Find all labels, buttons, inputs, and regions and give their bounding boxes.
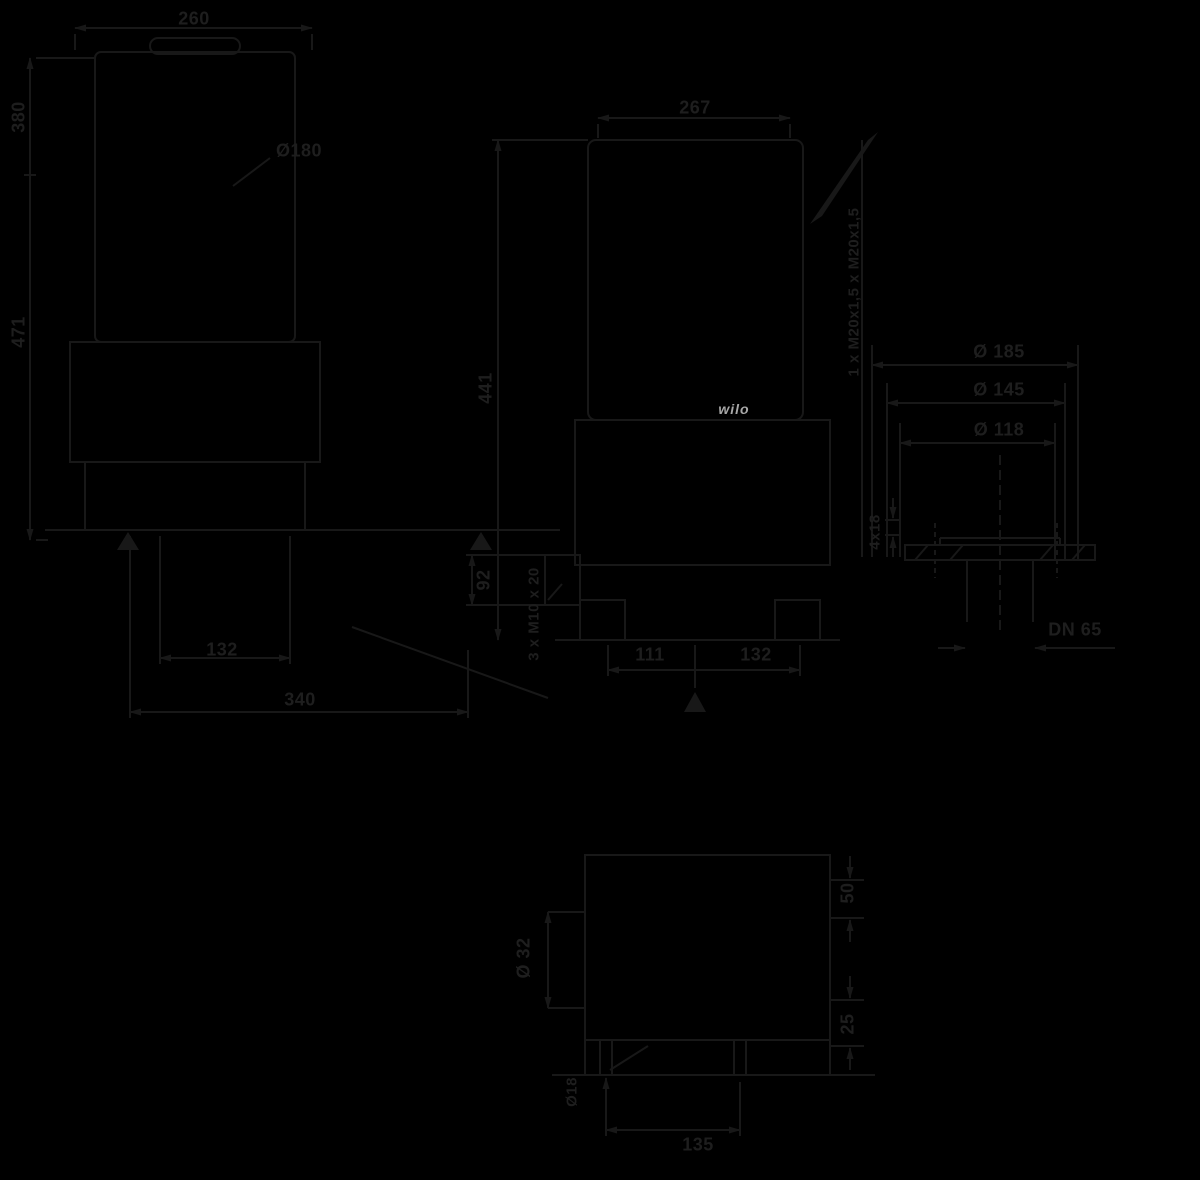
dim-height-upper: 380 — [9, 101, 30, 133]
dim-tapped-holes: 3 x M10 x 20 — [526, 567, 543, 661]
dim-anchor-hole-dia: Ø18 — [564, 1077, 581, 1107]
dimension-drawing: 260 Ø180 380 471 132 340 267 441 92 3 x … — [0, 0, 1200, 1180]
dim-side-depth: 267 — [679, 98, 711, 119]
port-dia-dim — [548, 912, 585, 1008]
dim-base-width-outer: 340 — [284, 690, 316, 711]
drawing-linework — [0, 0, 1200, 1180]
dim-discharge-height: 441 — [476, 372, 497, 404]
flange-centerlines — [935, 455, 1057, 630]
side-view-outline — [545, 140, 840, 640]
hole-spacing-dim — [606, 1082, 740, 1136]
dim-port-dia: Ø 32 — [514, 937, 535, 978]
dim-front-width: 260 — [178, 9, 210, 30]
level-marker-icon — [684, 692, 706, 712]
level-marker-icon — [117, 532, 139, 550]
dim-nominal-dia: DN 65 — [1048, 620, 1102, 641]
dim-offset-top: 50 — [838, 882, 859, 903]
flange-dim-lines — [872, 345, 1078, 560]
dim-hole-spacing: 135 — [682, 1135, 714, 1156]
cable-gland-note: 1 x M20x1,5 x M20x1,5 — [846, 208, 863, 377]
front-base-dims — [130, 536, 548, 718]
dim-flange-outer-dia: Ø 185 — [973, 342, 1025, 363]
dim-motor-diameter: Ø180 — [276, 141, 322, 162]
level-marker-icon — [470, 532, 492, 550]
base-detail-outline — [552, 855, 875, 1075]
cable-arrow-icon — [810, 132, 878, 224]
brand-logo: wilo — [718, 401, 749, 417]
motor-dia-leader — [233, 158, 270, 186]
dim-base-width-inner: 132 — [206, 640, 238, 661]
dim-base-front: 111 — [635, 645, 665, 666]
front-view-outline — [45, 38, 560, 530]
side-depth-dim — [598, 118, 790, 138]
dim-base-rear: 132 — [740, 645, 772, 666]
dim-height-total: 471 — [9, 316, 30, 348]
dim-bolt-circle-dia: Ø 145 — [973, 380, 1025, 401]
dim-offset-bottom: 25 — [838, 1013, 859, 1034]
dim-flange-offset: 92 — [474, 569, 495, 590]
dim-raised-face-dia: Ø 118 — [974, 420, 1025, 441]
dim-bolt-holes: 4x18 — [867, 514, 884, 549]
